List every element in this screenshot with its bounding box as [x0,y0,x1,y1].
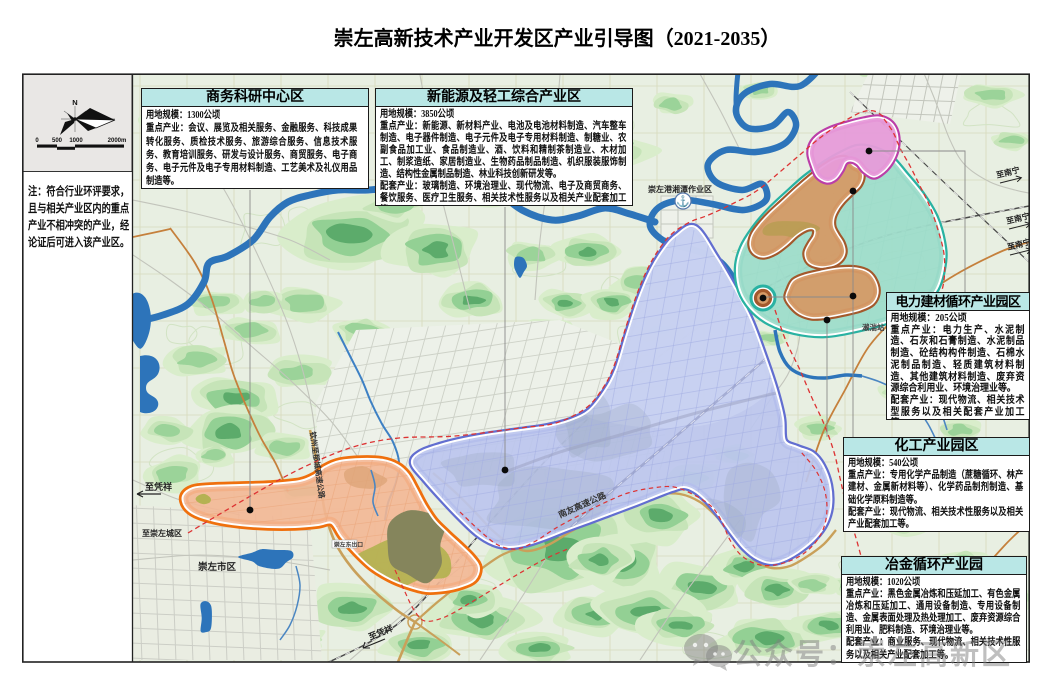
svg-text:N: N [72,98,77,107]
svg-text:至凭祥: 至凭祥 [145,481,172,492]
svg-text:至崇左城区: 至崇左城区 [142,528,182,538]
svg-text:崇左东出口: 崇左东出口 [334,541,363,549]
svg-text:1000: 1000 [69,138,83,144]
svg-text:500: 500 [52,138,63,144]
svg-text:濑湍站: 濑湍站 [862,322,885,332]
svg-text:⚓: ⚓ [676,195,690,208]
svg-text:崇左市区: 崇左市区 [198,561,237,573]
svg-text:崇左港湘潭作业区: 崇左港湘潭作业区 [648,184,712,194]
svg-text:2000m: 2000m [108,138,127,144]
